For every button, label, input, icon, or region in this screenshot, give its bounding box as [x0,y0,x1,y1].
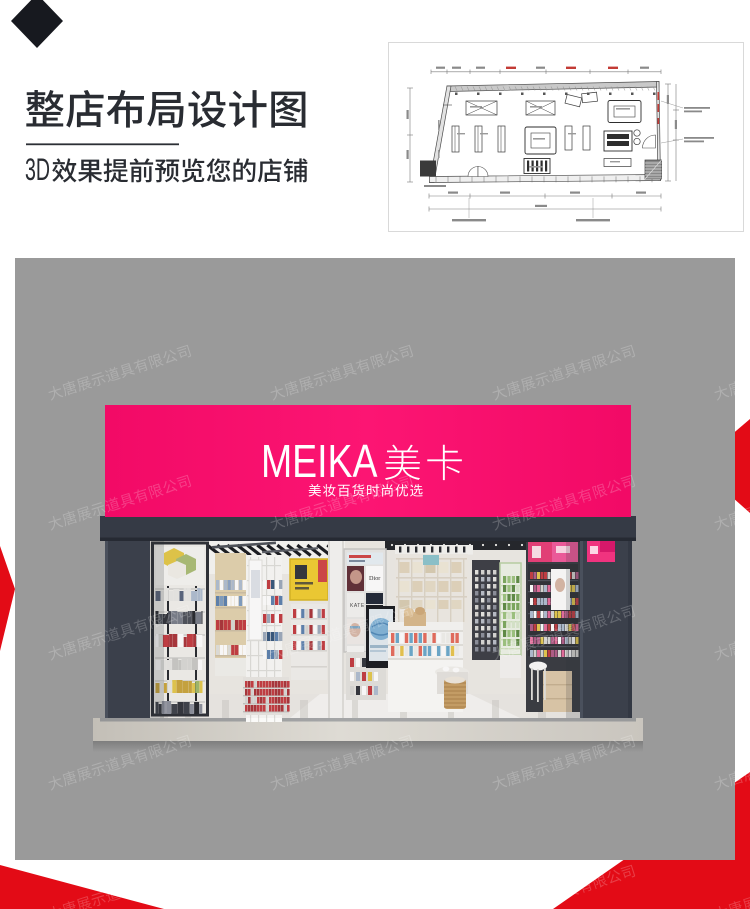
svg-text:MEIKA: MEIKA [261,435,378,487]
svg-text:3D: 3D [25,151,50,187]
